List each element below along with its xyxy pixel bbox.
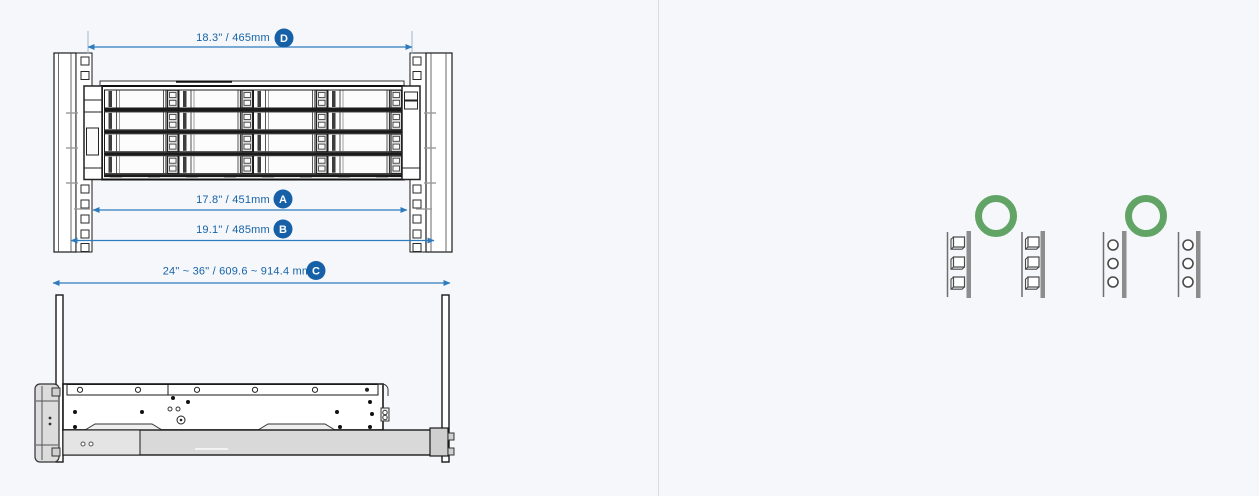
drive-tray xyxy=(328,90,402,108)
dimension-b: 19.1" / 485mm B xyxy=(71,220,434,241)
drive-tray xyxy=(254,112,328,130)
compatible-ring-icon xyxy=(979,199,1014,234)
drive-tray xyxy=(105,112,179,130)
rack-ear-right xyxy=(402,86,420,180)
dimension-b-badge-letter: B xyxy=(279,224,287,236)
drive-tray xyxy=(254,134,328,152)
square-hole xyxy=(1026,237,1040,249)
square-hole xyxy=(81,57,89,65)
drive-tray xyxy=(328,112,402,130)
round-hole xyxy=(1108,277,1118,287)
square-hole-rack-illustration xyxy=(948,199,1046,299)
round-hole-post-left xyxy=(1104,231,1127,298)
sliding-rail xyxy=(63,428,454,456)
dimension-d: 18.3" / 465mm D xyxy=(88,29,412,55)
dimension-a-badge-letter: A xyxy=(279,194,287,206)
round-hole xyxy=(1183,240,1193,250)
dimension-drawings-panel: 18.3" / 465mm D 17.8" / 451mm A 19.1" / … xyxy=(0,0,660,496)
drive-tray xyxy=(328,156,402,174)
dimension-a: 17.8" / 451mm A xyxy=(93,190,407,211)
square-hole xyxy=(1026,277,1040,289)
drive-tray xyxy=(179,156,253,174)
square-hole xyxy=(951,257,965,269)
round-hole xyxy=(1183,259,1193,269)
square-hole xyxy=(413,215,421,223)
panel-divider xyxy=(658,0,659,496)
square-hole-post-right xyxy=(1022,231,1045,298)
rear-rail-bracket xyxy=(430,428,448,456)
square-hole xyxy=(413,57,421,65)
dimension-a-label: 17.8" / 451mm xyxy=(196,194,270,206)
dimension-c-badge-letter: C xyxy=(312,266,320,278)
round-hole xyxy=(1108,259,1118,269)
rack-mounting-diagram: 18.3" / 465mm D 17.8" / 451mm A 19.1" / … xyxy=(0,0,1259,496)
drive-tray xyxy=(105,134,179,152)
square-hole xyxy=(413,244,421,252)
rail-side-view: 24" ~ 36" / 609.6 ~ 914.4 mm C xyxy=(35,261,454,462)
dimension-d-badge-letter: D xyxy=(280,33,288,45)
front-ear-bracket xyxy=(35,384,60,462)
square-hole xyxy=(1026,257,1040,269)
dimension-c: 24" ~ 36" / 609.6 ~ 914.4 mm C xyxy=(53,261,450,283)
square-hole xyxy=(81,200,89,208)
drive-tray xyxy=(254,156,328,174)
rack-compatibility-panel xyxy=(660,0,1259,496)
round-hole-post-right xyxy=(1179,231,1201,298)
square-hole xyxy=(413,72,421,80)
square-hole xyxy=(81,72,89,80)
drive-tray xyxy=(179,90,253,108)
enclosure-front xyxy=(84,81,420,180)
square-hole xyxy=(951,237,965,249)
drive-tray xyxy=(254,90,328,108)
round-hole-rack-illustration xyxy=(1104,199,1201,299)
dimension-b-label: 19.1" / 485mm xyxy=(196,224,270,236)
drive-tray xyxy=(105,90,179,108)
dimension-d-label: 18.3" / 465mm xyxy=(196,32,270,44)
square-hole xyxy=(951,277,965,289)
square-hole-post-left xyxy=(948,231,972,298)
square-hole xyxy=(413,185,421,193)
square-hole xyxy=(413,230,421,238)
drive-tray xyxy=(105,156,179,174)
dimension-c-label: 24" ~ 36" / 609.6 ~ 914.4 mm xyxy=(163,266,312,278)
square-hole xyxy=(81,244,89,252)
chassis-side xyxy=(63,384,389,430)
square-hole xyxy=(413,200,421,208)
drive-tray xyxy=(179,112,253,130)
round-hole xyxy=(1108,240,1118,250)
square-hole xyxy=(81,185,89,193)
rack-ear-left xyxy=(84,86,102,180)
round-hole xyxy=(1183,277,1193,287)
drive-tray xyxy=(328,134,402,152)
drive-tray xyxy=(179,134,253,152)
square-hole xyxy=(81,230,89,238)
compatible-ring-icon xyxy=(1129,199,1164,234)
square-hole xyxy=(81,215,89,223)
rack-front-view xyxy=(54,53,452,252)
